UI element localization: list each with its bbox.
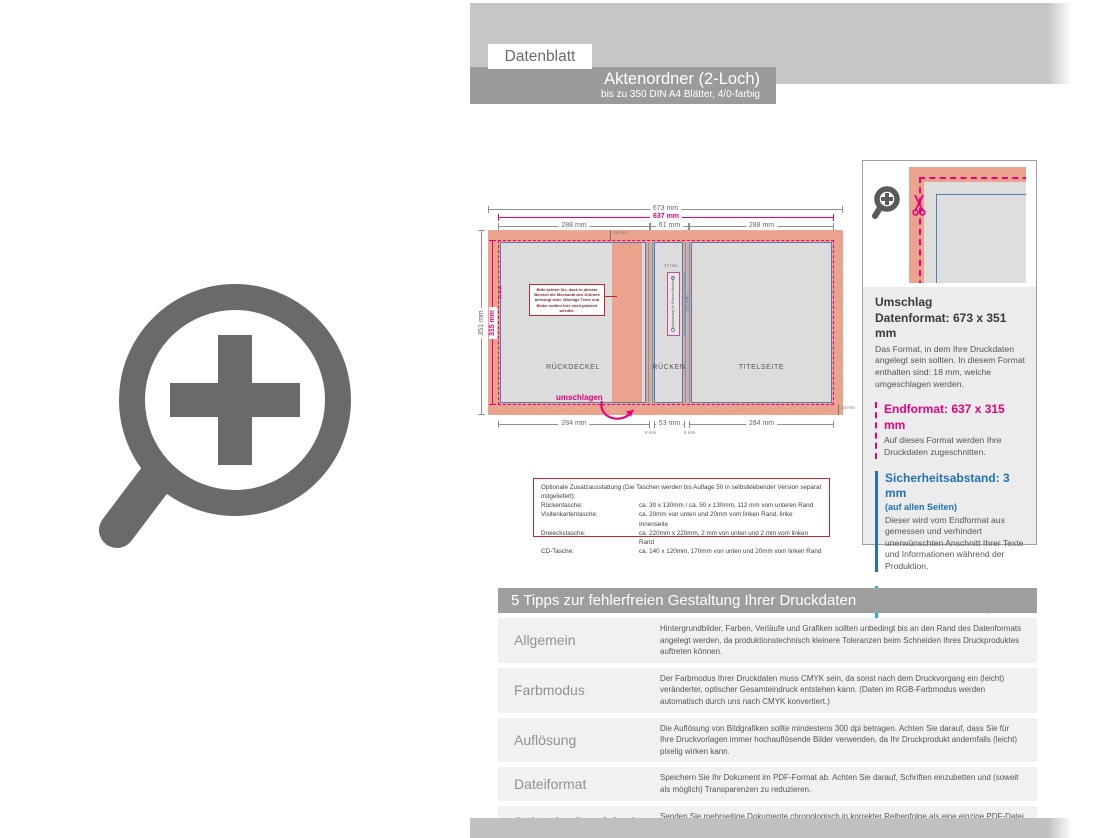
endformat-text: Auf dieses Format werden Ihre Druckdaten…: [884, 435, 1027, 458]
fold-arrow-icon: [597, 396, 641, 426]
zoom-in-cursor-icon[interactable]: [95, 272, 365, 562]
option-spec: ca. 30 x 130mm / ca. 50 x 130mm, 112 mm …: [639, 501, 822, 510]
page-subtitle: bis zu 350 DIN A4 Blätter, 4/0-farbig: [470, 89, 760, 101]
option-name: Dreieckstasche:: [541, 529, 639, 547]
fold-dim-line: [838, 404, 839, 415]
spine-slot-dim-side: 192 mm: [686, 295, 691, 311]
tip-label: Allgemein: [498, 618, 660, 663]
sicherheitsabstand-subheading: (auf allen Seiten): [885, 502, 1027, 513]
dim-label: 288 mm: [558, 222, 589, 230]
tip-row-aufloesung: Auflösung Die Auflösung von Bildgrafiken…: [498, 718, 1037, 763]
tip-row-farbmodus: Farbmodus Der Farbmodus Ihrer Druckdaten…: [498, 668, 1037, 713]
mechanism-note-box: Bitte achten Sie, dass in diesem Bereich…: [529, 284, 605, 316]
back-cover-label: RÜCKDECKEL: [500, 364, 646, 371]
spine-slot-dim-top: 17 mm: [664, 264, 678, 269]
dim-tick: [498, 421, 499, 428]
option-spec: ca. 20mm von unten und 20mm vom linken R…: [639, 510, 822, 528]
fold-line: [685, 242, 686, 403]
tip-text: Die Auflösung von Bildgrafiken sollte mi…: [660, 718, 1037, 763]
sicherheitsabstand-section: Sicherheitsabstand: 3 mm (auf allen Seit…: [875, 471, 1027, 573]
fold-dim-label-left: 18 mm: [498, 286, 503, 300]
dim-label: 53 mm: [656, 420, 683, 428]
dim-label: 284 mm: [746, 420, 777, 428]
zoom-in-icon: [871, 185, 907, 225]
endformat-section: Endformat: 637 x 315 mm Auf dieses Forma…: [875, 402, 1027, 458]
dim-tick: [842, 206, 843, 213]
dim-total-height: 351 mm: [481, 230, 482, 415]
dim-label: 673 mm: [650, 205, 681, 213]
datenblatt-tab: Datenblatt: [488, 44, 592, 69]
dim-bottom-fold-right: 8 mm: [684, 431, 694, 436]
endformat-heading: Endformat: 637 x 315 mm: [884, 402, 1027, 433]
dim-trim-height: 315 mm: [492, 240, 493, 405]
front-cover-panel: [691, 242, 832, 403]
option-name: Visitenkartentasche:: [541, 510, 639, 528]
dim-label: 284 mm: [558, 420, 589, 428]
dim-tick: [650, 223, 651, 230]
fold-over-band: [612, 243, 642, 402]
datasheet-page: Aktenordner (2-Loch) bis zu 350 DIN A4 B…: [0, 0, 1117, 838]
dim-tick: [833, 214, 834, 221]
dim-label: 637 mm: [650, 213, 682, 221]
tip-row-dateiformat: Dateiformat Speichern Sie Ihr Dokument i…: [498, 767, 1037, 800]
spine-label: RÜCKEN: [640, 364, 698, 371]
tips-header: 5 Tipps zur fehlerfreien Gestaltung Ihre…: [498, 588, 1037, 613]
footer-bar: [470, 818, 1072, 838]
dim-tick: [489, 404, 496, 405]
tip-label: Auflösung: [498, 718, 660, 763]
dim-label: 351 mm: [478, 307, 486, 338]
fold-line: [652, 242, 653, 403]
mechanism-note-text: Bitte achten Sie, dass in diesem Bereich…: [532, 287, 602, 313]
tip-text: Speichern Sie Ihr Dokument im PDF-Format…: [660, 767, 1037, 800]
options-row: CD-Tasche: ca. 140 x 120mm, 170mm von un…: [541, 547, 822, 556]
corner-safety-line: [936, 194, 1026, 283]
option-spec: ca. 140 x 120mm, 170mm von unten und 20m…: [639, 547, 822, 556]
options-row: Dreieckstasche: ca. 220mm x 220mm, 2 mm …: [541, 529, 822, 547]
options-row: Visitenkartentasche: ca. 20mm von unten …: [541, 510, 822, 528]
tip-label: Dateiformat: [498, 767, 660, 800]
dim-left-section: 288 mm: [498, 226, 650, 227]
dim-tick: [478, 414, 485, 415]
sicherheitsabstand-text: Dieser wird vom Endformat aus gemessen u…: [885, 515, 1027, 573]
dim-bottom-fold-left: 8 mm: [645, 431, 655, 436]
options-box: Optionale Zusatzausstattung (Die Taschen…: [533, 478, 830, 537]
note-connector-line: [605, 296, 617, 297]
dim-trim-width: 637 mm: [498, 217, 834, 218]
dim-bottom-right: 284 mm: [689, 424, 834, 425]
option-name: Rückentasche:: [541, 501, 639, 510]
fold-dim-label: 18 mm: [841, 406, 855, 411]
dim-label: 288 mm: [746, 222, 777, 230]
front-cover-label: TITELSEITE: [691, 364, 832, 371]
dim-tick: [498, 214, 499, 221]
datenformat-text: Das Format, in dem Ihre Druckdaten angel…: [875, 344, 1027, 390]
fold-dim-label: 18 mm: [613, 231, 627, 236]
umschlag-heading: Umschlag: [875, 295, 1027, 311]
option-spec: ca. 220mm x 220mm, 2 mm von unten und 2 …: [639, 529, 822, 547]
tip-label: Farbmodus: [498, 668, 660, 713]
dim-tick: [689, 421, 690, 428]
tip-row-allgemein: Allgemein Hintergrundbilder, Farben, Ver…: [498, 618, 1037, 663]
dim-tick: [689, 223, 690, 230]
dim-total-width: 673 mm: [488, 209, 843, 210]
dim-tick: [649, 421, 650, 428]
dim-tick: [478, 230, 485, 231]
dim-label: 61 mm: [656, 222, 683, 230]
scissors-icon: [911, 193, 927, 217]
fold-line: [648, 242, 649, 403]
options-title: Optionale Zusatzausstattung (Die Taschen…: [541, 483, 822, 501]
dim-tick: [684, 421, 685, 428]
dim-tick: [489, 240, 496, 241]
datenformat-heading: Datenformat: 673 x 351 mm: [875, 311, 1027, 342]
option-name: CD-Tasche:: [541, 547, 639, 556]
dim-spine-section: 61 mm: [650, 226, 689, 227]
tip-text: Hintergrundbilder, Farben, Verläufe und …: [660, 618, 1037, 663]
fold-line: [689, 242, 690, 403]
dim-tick: [833, 223, 834, 230]
corner-detail-graphic: [909, 167, 1026, 283]
sicherheitsabstand-heading: Sicherheitsabstand: 3 mm: [885, 471, 1027, 502]
dim-label: 315 mm: [489, 306, 497, 338]
tips-table: Allgemein Hintergrundbilder, Farben, Ver…: [498, 618, 1037, 838]
dim-right-section: 288 mm: [689, 226, 834, 227]
page-title: Aktenordner (2-Loch): [470, 69, 760, 89]
dim-tick: [498, 223, 499, 230]
tip-text: Der Farbmodus Ihrer Druckdaten muss CMYK…: [660, 668, 1037, 713]
dim-tick: [488, 206, 489, 213]
spine-slot-text: Aussparung für Ordner-Mechanik: [672, 274, 676, 332]
dim-bottom-spine: 53 mm: [654, 424, 685, 425]
options-row: Rückentasche: ca. 30 x 130mm / ca. 50 x …: [541, 501, 822, 510]
fold-over-label: umschlagen: [556, 393, 603, 402]
info-panel-body: Umschlag Datenformat: 673 x 351 mm Das F…: [863, 287, 1036, 544]
info-panel: Umschlag Datenformat: 673 x 351 mm Das F…: [862, 160, 1037, 545]
corner-detail: [863, 161, 1036, 287]
fold-dim-line: [610, 230, 611, 241]
dim-tick: [833, 421, 834, 428]
product-title-bar: Aktenordner (2-Loch) bis zu 350 DIN A4 B…: [470, 67, 776, 104]
